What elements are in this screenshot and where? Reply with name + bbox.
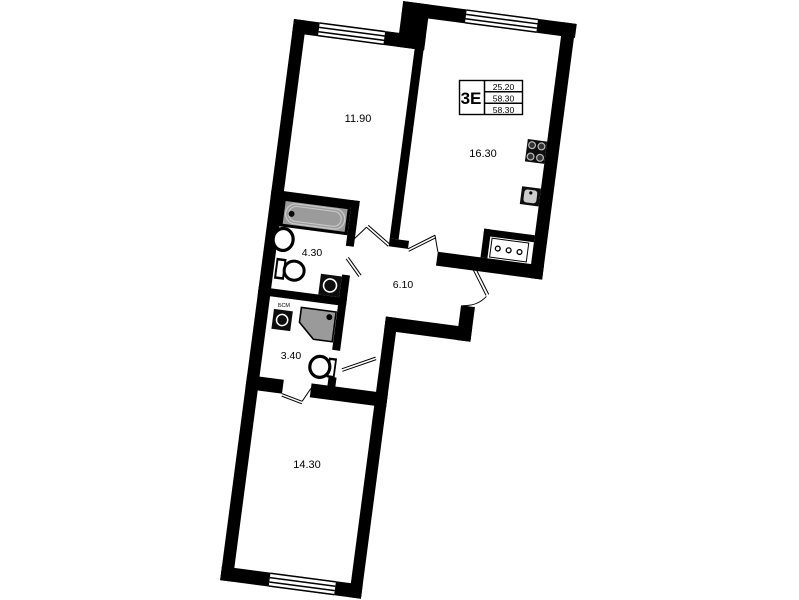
svg-text:16.30: 16.30 <box>469 148 497 160</box>
svg-text:58.30: 58.30 <box>493 93 515 103</box>
svg-text:58.30: 58.30 <box>493 105 515 115</box>
svg-text:14.30: 14.30 <box>293 459 321 471</box>
svg-text:3.40: 3.40 <box>281 350 302 362</box>
svg-text:6.10: 6.10 <box>393 279 414 291</box>
svg-text:25.20: 25.20 <box>493 82 515 92</box>
svg-text:11.90: 11.90 <box>345 113 372 125</box>
svg-text:3Е: 3Е <box>461 89 482 108</box>
svg-text:4.30: 4.30 <box>302 247 323 259</box>
svg-text:БСМ: БСМ <box>278 303 290 309</box>
